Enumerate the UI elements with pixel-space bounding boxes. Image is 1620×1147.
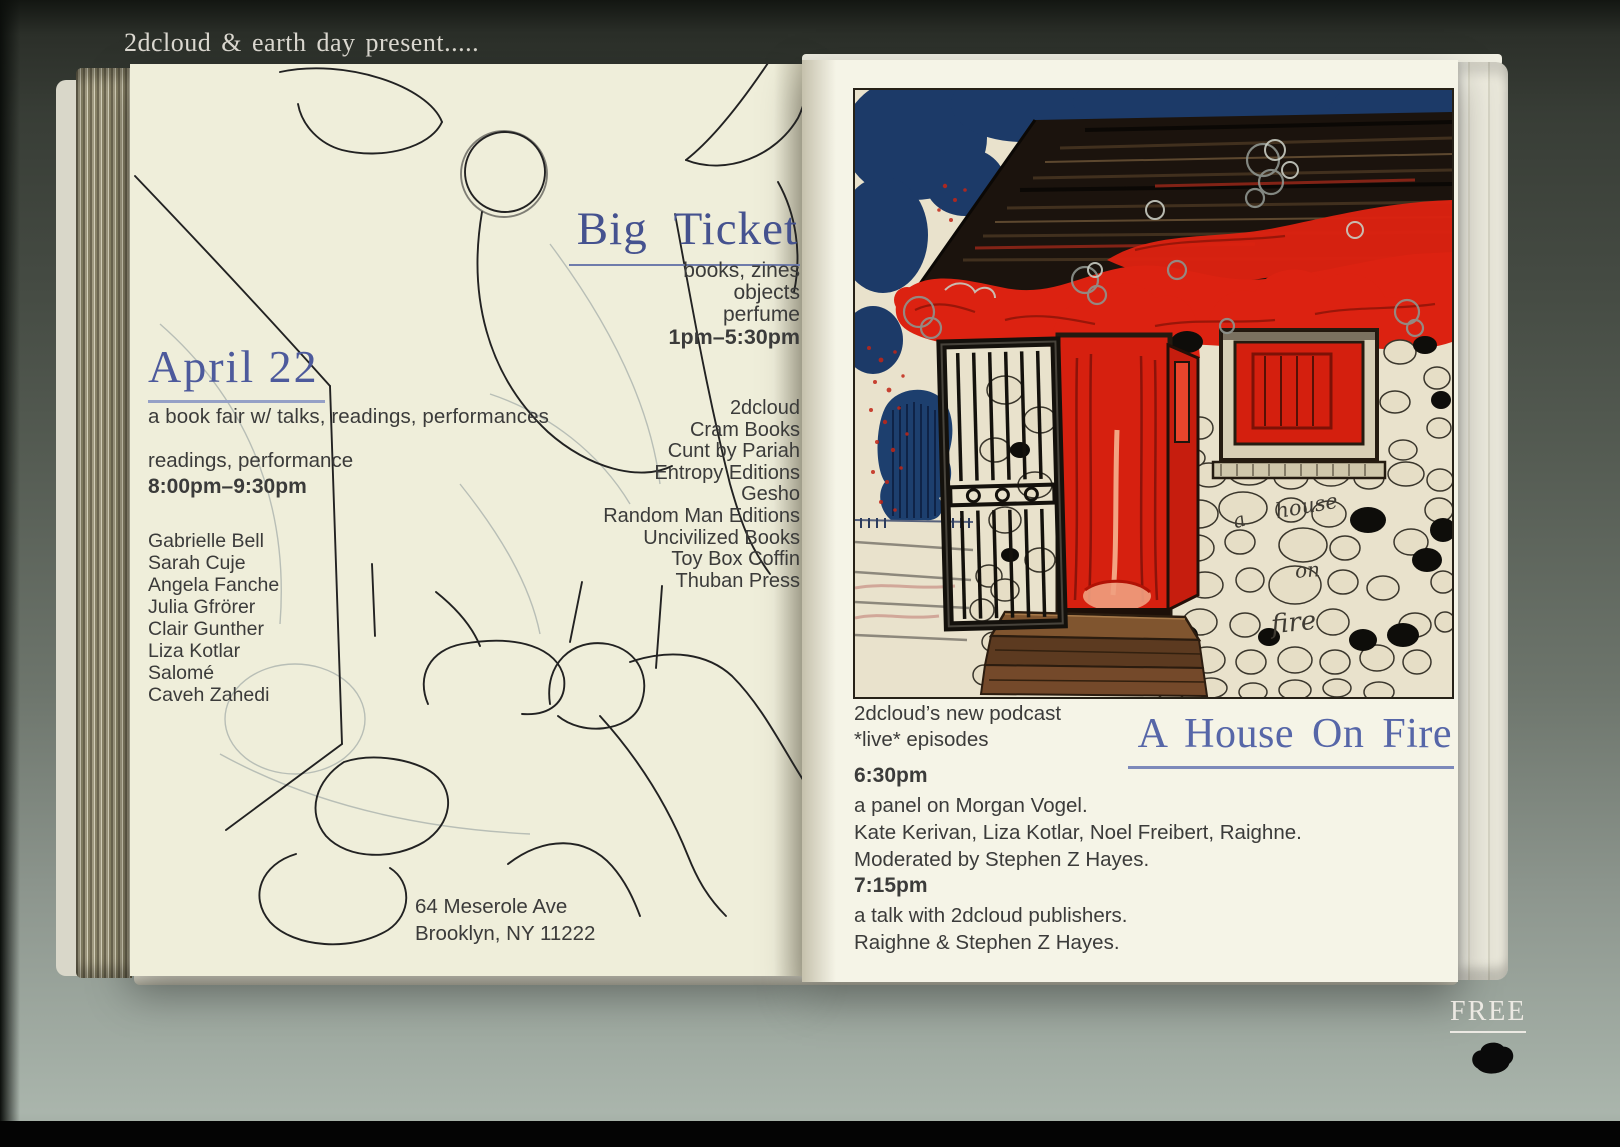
fair-offerings: books, zines objects perfume 1pm–5:30pm — [669, 260, 800, 349]
session-line: Kate Kerivan, Liza Kotlar, Noel Freibert… — [854, 819, 1302, 846]
participant-name: Clair Gunther — [148, 618, 279, 640]
book-cover-edge — [56, 80, 78, 976]
event-date-heading: April 22 — [148, 340, 325, 403]
house-on-fire-illustration: a house on fire — [853, 88, 1454, 699]
session-line: Moderated by Stephen Z Hayes. — [854, 846, 1302, 873]
address-line: Brooklyn, NY 11222 — [415, 920, 595, 947]
session-line: a talk with 2dcloud publishers. — [854, 902, 1128, 929]
participant-name: Caveh Zahedi — [148, 684, 279, 706]
page-stack-left — [76, 68, 132, 978]
session-time: 6:30pm — [854, 764, 1302, 788]
exhibitor: Gesho — [603, 484, 800, 506]
session-block: 6:30pm a panel on Morgan Vogel. Kate Ker… — [854, 764, 1302, 873]
podcast-intro-line: 2dcloud’s new podcast — [854, 701, 1061, 727]
participant-name: Gabrielle Bell — [148, 530, 279, 552]
open-book: April 22 a book fair w/ talks, readings,… — [50, 54, 1512, 988]
free-label: FREE — [1450, 996, 1526, 1033]
caption-word: on — [1294, 557, 1321, 583]
right-page: a house on fire 2dcloud’s new podcast *l… — [802, 60, 1458, 982]
fair-heading: Big Ticket — [569, 202, 800, 266]
participant-name: Liza Kotlar — [148, 640, 279, 662]
participant-name: Salomé — [148, 662, 279, 684]
session-block: 7:15pm a talk with 2dcloud publishers. R… — [854, 874, 1128, 956]
participant-name: Julia Gfrörer — [148, 596, 279, 618]
caption-word: fire — [1270, 606, 1318, 641]
event-subtitle: a book fair w/ talks, readings, performa… — [148, 405, 549, 429]
exhibitor: Cunt by Pariah — [603, 441, 800, 463]
red-door — [1058, 335, 1198, 617]
exhibitor: Toy Box Coffin — [603, 549, 800, 571]
exhibitors-list: 2dcloud Cram Books Cunt by Pariah Entrop… — [603, 398, 800, 592]
readings-label: readings, performance — [148, 448, 353, 474]
session-time: 7:15pm — [854, 874, 1128, 898]
scan-edge-shadow — [0, 0, 20, 1147]
participants-list: Gabrielle Bell Sarah Cuje Angela Fanche … — [148, 530, 279, 706]
left-page: April 22 a book fair w/ talks, readings,… — [130, 64, 802, 976]
podcast-heading: A House On Fire — [1128, 710, 1454, 769]
offering: objects — [669, 282, 800, 304]
illustration-art — [855, 90, 1452, 697]
exhibitor: Random Man Editions — [603, 506, 800, 528]
session-line: Raighne & Stephen Z Hayes. — [854, 929, 1128, 956]
podcast-intro: 2dcloud’s new podcast *live* episodes — [854, 701, 1061, 753]
session-line: a panel on Morgan Vogel. — [854, 792, 1302, 819]
exhibitor: 2dcloud — [603, 398, 800, 420]
exhibitor: Thuban Press — [603, 571, 800, 593]
exhibitor: Cram Books — [603, 420, 800, 442]
scan-bottom-strip — [0, 1121, 1620, 1147]
cloud-blob-icon — [1468, 1038, 1518, 1080]
participant-name: Angela Fanche — [148, 574, 279, 596]
exhibitor: Uncivilized Books — [603, 528, 800, 550]
fair-time: 1pm–5:30pm — [669, 325, 800, 349]
offering: books, zines — [669, 260, 800, 282]
podcast-intro-line: *live* episodes — [854, 727, 1061, 753]
offering: perfume — [669, 304, 800, 326]
exhibitor: Entropy Editions — [603, 463, 800, 485]
red-window — [1213, 330, 1385, 478]
venue-address: 64 Meserole Ave Brooklyn, NY 11222 — [415, 893, 595, 947]
participant-name: Sarah Cuje — [148, 552, 279, 574]
readings-time: 8:00pm–9:30pm — [148, 475, 307, 498]
address-line: 64 Meserole Ave — [415, 893, 595, 920]
page-stack-right — [1458, 62, 1508, 980]
